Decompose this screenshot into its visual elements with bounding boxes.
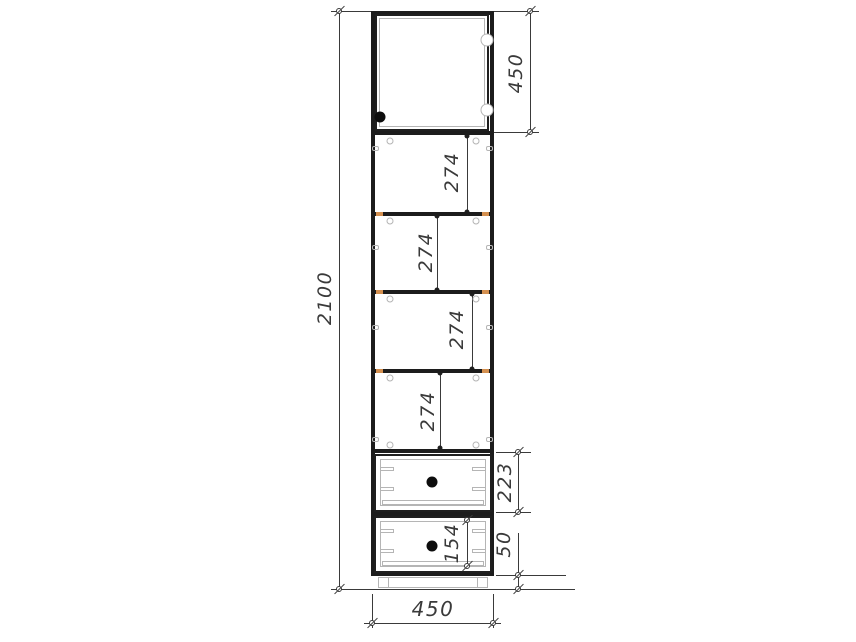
dim-section-3: 274	[446, 309, 468, 350]
drawer-1-knob	[427, 477, 438, 488]
dim-tick-icon	[333, 5, 345, 17]
cam-mark-icon	[473, 442, 480, 449]
dim-drawer-inner: 154	[441, 523, 463, 564]
drawer-slide-icon	[380, 467, 394, 471]
dim-section-4: 274	[417, 391, 439, 432]
cam-mark-icon	[387, 138, 394, 145]
shelf-under-door	[375, 131, 490, 135]
dim-line-section-4	[440, 373, 441, 448]
wood-edge-cap	[482, 290, 489, 294]
cam-mark-icon	[387, 296, 394, 303]
dim-line-section-1	[467, 136, 468, 212]
cam-mark-icon	[473, 218, 480, 225]
dim-line-drawer-section	[518, 452, 519, 513]
wood-edge-cap	[376, 290, 383, 294]
ext-line-plinth-top	[496, 575, 566, 576]
drawer-slide-icon	[472, 467, 486, 471]
plinth-foot-right	[477, 577, 488, 588]
hinge-icon	[481, 34, 494, 47]
shelf-pin-icon	[372, 437, 379, 442]
drawer-slide-icon	[472, 549, 486, 553]
shelf-pin-icon	[372, 245, 379, 250]
cam-mark-icon	[473, 375, 480, 382]
dim-door-height: 450	[505, 53, 527, 94]
dim-tick-icon	[333, 583, 345, 595]
drawer-1-bottom-rail	[382, 500, 484, 505]
hinge-icon	[481, 104, 494, 117]
wood-edge-cap	[376, 369, 383, 373]
drawer-slide-icon	[380, 529, 394, 533]
door-knob	[375, 112, 386, 123]
dim-line-door-height	[530, 11, 531, 133]
dim-section-1: 274	[441, 152, 463, 193]
ext-line-bottom	[331, 589, 575, 590]
dim-plinth-height: 50	[493, 530, 515, 557]
dim-overall-height: 2100	[314, 271, 336, 325]
dim-section-2: 274	[415, 232, 437, 273]
shelf-4	[375, 449, 490, 453]
cam-mark-icon	[473, 296, 480, 303]
drawer-slide-icon	[380, 487, 394, 491]
dim-overall-width: 450	[412, 597, 455, 621]
plinth-panel	[378, 577, 488, 588]
dim-line-section-3	[472, 294, 473, 369]
plinth-foot-left	[378, 577, 389, 588]
shelf-2	[375, 290, 490, 294]
shelf-pin-icon	[372, 325, 379, 330]
wood-edge-cap	[482, 369, 489, 373]
cam-mark-icon	[387, 442, 394, 449]
wood-edge-cap	[376, 212, 383, 216]
cam-mark-icon	[473, 138, 480, 145]
shelf-pin-icon	[486, 325, 493, 330]
shelf-pin-icon	[372, 146, 379, 151]
shelf-pin-icon	[486, 437, 493, 442]
drawer-slide-icon	[380, 549, 394, 553]
shelf-pin-icon	[486, 146, 493, 151]
cam-mark-icon	[387, 218, 394, 225]
dim-tick-icon	[524, 5, 536, 17]
drawer-slide-icon	[472, 529, 486, 533]
shelf-1	[375, 212, 490, 216]
dim-tick-icon	[512, 569, 524, 581]
dim-drawer-section: 223	[494, 462, 516, 503]
dim-line-overall-width	[364, 623, 501, 624]
dim-tick-icon	[512, 583, 524, 595]
dim-tick-icon	[524, 126, 536, 138]
drawer-slide-icon	[472, 487, 486, 491]
cabinet-technical-drawing: 2100 450 274 274 274 274 223 154 50 450	[0, 0, 856, 642]
dim-line-overall-height	[339, 11, 340, 590]
dim-tick-icon	[512, 506, 524, 518]
door-inner-outline	[379, 18, 485, 127]
drawer-2-knob	[427, 541, 438, 552]
dim-tick-icon	[366, 617, 378, 629]
dim-tick-icon	[487, 617, 499, 629]
cam-mark-icon	[387, 375, 394, 382]
dim-line-section-2	[437, 216, 438, 290]
shelf-pin-icon	[486, 245, 493, 250]
wood-edge-cap	[482, 212, 489, 216]
dim-tick-icon	[512, 446, 524, 458]
shelf-3	[375, 369, 490, 373]
